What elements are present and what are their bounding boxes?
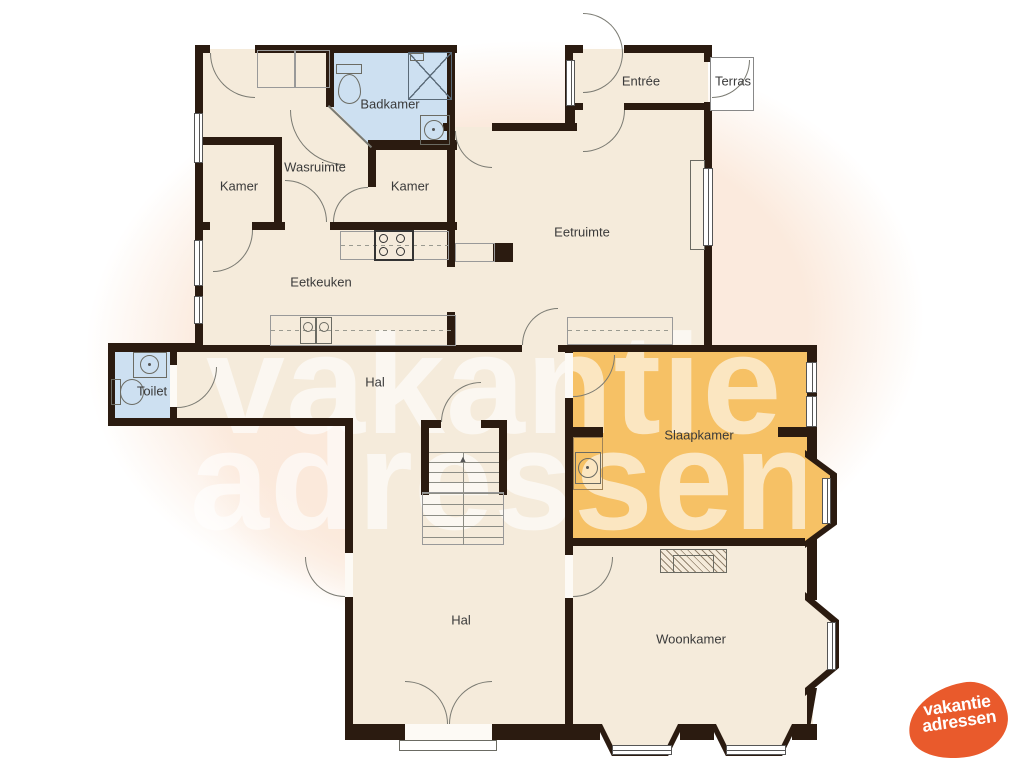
room-label-kamer-left: Kamer xyxy=(220,179,258,194)
room-label-wasruimte: Wasruimte xyxy=(284,160,346,175)
room-label-eetruimte: Eetruimte xyxy=(554,225,610,240)
room-label-kamer-right: Kamer xyxy=(391,179,429,194)
room-label-entree: Entrée xyxy=(622,74,660,89)
room-label-woonkamer: Woonkamer xyxy=(656,632,726,647)
room-label-hal-middle: Hal xyxy=(365,375,385,390)
stairs-direction-arrow: ▲ xyxy=(459,454,468,464)
room-label-toilet: Toilet xyxy=(137,384,167,399)
vakantieadressen-logo: vakantie adressen xyxy=(898,680,1018,764)
room-label-terras: Terras xyxy=(715,74,751,89)
room-label-badkamer: Badkamer xyxy=(360,97,419,112)
room-label-hal-lower: Hal xyxy=(451,613,471,628)
room-label-slaapkamer: Slaapkamer xyxy=(664,428,733,443)
floorplan-canvas: vakantie adressen xyxy=(0,0,1024,768)
room-label-eetkeuken: Eetkeuken xyxy=(290,275,351,290)
